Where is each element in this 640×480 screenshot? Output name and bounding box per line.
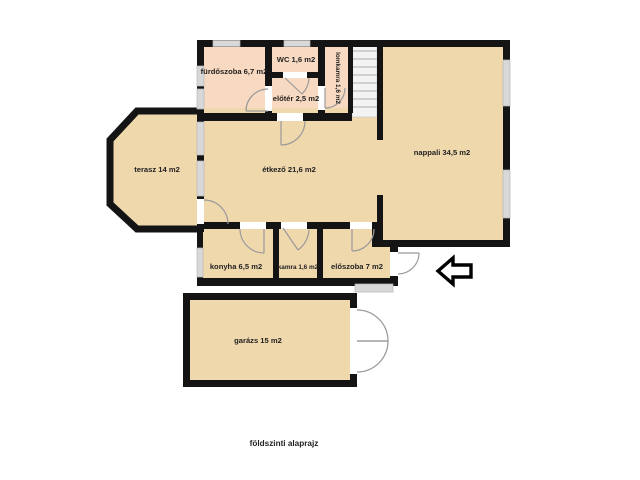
door-swing-garazs-bottom	[357, 341, 388, 372]
door-gap-wc	[283, 72, 307, 78]
room-fills	[110, 40, 507, 387]
room-label-lomkamra: lomkamra 1,6 m2	[334, 52, 341, 104]
room-label-eloter: előtér 2,5 m2	[273, 94, 319, 103]
door-gap-konyha	[240, 222, 266, 229]
door-swing-garazs-top	[357, 310, 388, 341]
door-gap-kamra	[281, 222, 307, 229]
door-gap-garazs	[350, 308, 357, 374]
window-nappali-right-2	[503, 170, 510, 218]
wall-etkezo-nappali-upper	[377, 40, 383, 140]
window-terasz-wall-2	[197, 161, 204, 196]
door-gap-entry	[390, 252, 398, 276]
room-fill-nappali	[380, 43, 507, 247]
wall-lomkamra-stairs-divider	[348, 43, 353, 113]
door-gap-terasz	[197, 199, 204, 224]
floor-plan-drawing: fürdőszoba 6,7 m2 WC 1,6 m2 előtér 2,5 m…	[0, 0, 640, 480]
door-gap-eloszoba	[350, 222, 372, 229]
door-swing-entry	[398, 253, 419, 274]
room-label-nappali: nappali 34,5 m2	[414, 148, 471, 157]
entrance-direction-arrow-icon	[438, 258, 471, 284]
room-label-furdoszoba: fürdőszoba 6,7 m2	[201, 67, 268, 76]
window-furdoszoba-left-2	[197, 89, 204, 109]
wall-konyha-kamra-divider	[273, 222, 279, 286]
room-label-konyha: konyha 6,5 m2	[210, 262, 262, 271]
door-gap-eloter-etkezo	[277, 113, 303, 121]
room-label-wc: WC 1,6 m2	[277, 55, 315, 64]
door-gap-furdoszoba	[265, 86, 272, 111]
window-furdoszoba-top	[213, 41, 240, 47]
room-label-eloszoba: előszoba 7 m2	[331, 262, 383, 271]
window-eloszoba-bottom	[355, 284, 393, 292]
window-konyha-left	[197, 248, 203, 277]
wall-kamra-eloszoba-divider	[317, 222, 323, 286]
room-fill-konyha-kamra-eloszoba	[200, 225, 393, 283]
wall-top-section-bottom	[197, 113, 352, 121]
window-nappali-right-1	[503, 60, 510, 106]
wall-top	[197, 40, 510, 47]
stairs-icon	[352, 43, 377, 117]
window-terasz-wall-1	[197, 122, 204, 155]
room-label-terasz: terasz 14 m2	[134, 165, 180, 174]
floor-plan-page: fürdőszoba 6,7 m2 WC 1,6 m2 előtér 2,5 m…	[0, 0, 640, 480]
room-label-etkezo: étkező 21,6 m2	[262, 165, 316, 174]
room-label-garazs: garázs 15 m2	[234, 336, 282, 345]
window-wc-top	[284, 41, 310, 47]
plan-caption: földszinti alaprajz	[250, 439, 319, 448]
room-label-kamra: kamra 1,6 m2	[278, 264, 319, 271]
